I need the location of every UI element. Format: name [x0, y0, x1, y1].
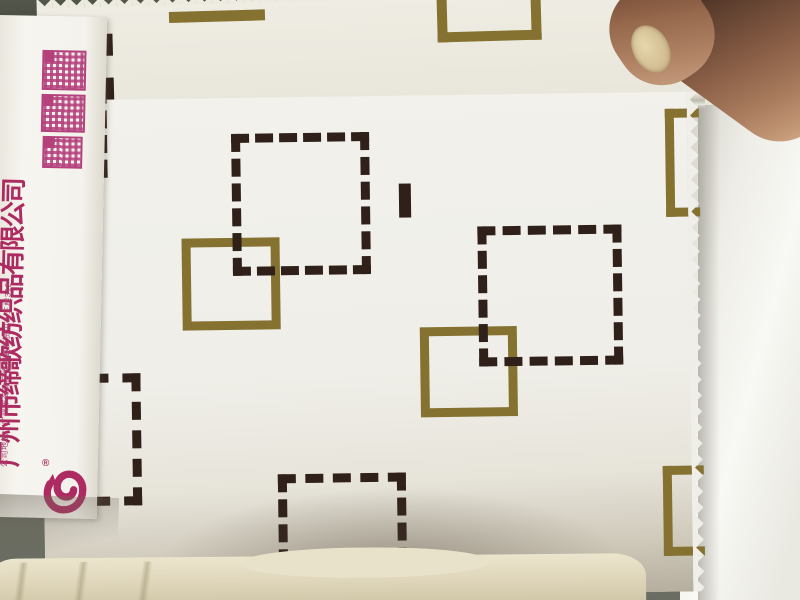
fabric-fold-line — [13, 563, 29, 600]
pattern-square-olive — [436, 0, 541, 42]
main-swatch-page — [39, 91, 706, 600]
qr-code-icon — [41, 94, 86, 133]
pattern-square-dashed — [231, 132, 371, 276]
qr-code-icon — [42, 136, 83, 169]
fabric-fold-line — [73, 562, 89, 600]
company-banner: 广州市缔歌纺织品有限公司 公司地址：广州市海珠区南洲路商贸中心三楼312 ® — [0, 15, 107, 519]
registered-trademark: ® — [42, 458, 50, 469]
photo-canvas: 广州市缔歌纺织品有限公司 公司地址：广州市海珠区南洲路商贸中心三楼312 ® — [0, 0, 800, 600]
banner-text-block: 广州市缔歌纺织品有限公司 公司地址：广州市海珠区南洲路商贸中心三楼312 — [0, 167, 88, 469]
fabric-roll-fold — [240, 547, 490, 579]
fabric-fold-line — [137, 561, 153, 600]
qr-code-icon — [42, 50, 87, 91]
pattern-square-dashed-fragment — [399, 183, 411, 217]
fabric-roll — [0, 553, 646, 600]
pattern-square-dashed — [477, 225, 623, 367]
